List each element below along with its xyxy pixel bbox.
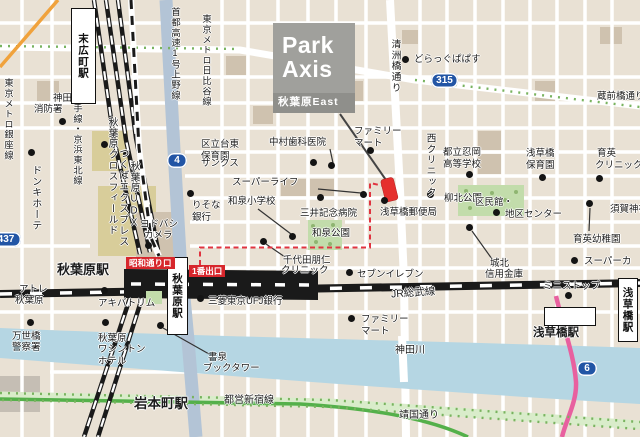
map-label: スーパーライフ [232, 177, 298, 188]
map-label: どらっぐぱぱす [414, 54, 481, 65]
map-label: ヨドバシ [140, 219, 178, 230]
map-label: 蔵前橋通り [597, 91, 640, 102]
map-label: 神田川 [395, 345, 425, 357]
map-label: サンクス [201, 158, 239, 169]
poi-dot [381, 197, 388, 204]
route-shield: 315 [431, 73, 458, 88]
property-logo: Park Axis 秋葉原East [273, 23, 355, 113]
map-label: スーパーカ [584, 256, 631, 267]
map-label: ファミリー [354, 126, 402, 137]
route-shield: 4 [167, 153, 187, 168]
map-label: 中村歯科医院 [269, 137, 326, 148]
map-label: 区立台東 [201, 139, 239, 150]
poi-dot [466, 171, 473, 178]
map-label: 浅草橋駅 [533, 327, 579, 341]
logo-name-block: Park Axis [273, 23, 355, 93]
poi-dot [571, 257, 578, 264]
poi-dot [157, 322, 164, 329]
map-label: クリニック [595, 160, 640, 171]
map-label: 靖国通り [399, 410, 439, 422]
map-label: ミニストップ [543, 281, 600, 292]
map-label: 保育園 [526, 160, 555, 171]
map-label: 首都高速1号上野線 [169, 7, 180, 100]
poi-dot [346, 269, 353, 276]
poi-dot [197, 295, 204, 302]
map-label: マート [354, 138, 383, 149]
station-exit-badge: 1番出口 [189, 265, 225, 277]
logo-subtitle: 秋葉原East [273, 93, 355, 113]
poi-dot [187, 190, 194, 197]
poi-dot [402, 56, 409, 63]
map-label: 清洲橋通り [389, 39, 401, 93]
map-label: 育英幼稚園 [573, 234, 621, 245]
map-label: ブックタワー [203, 363, 260, 374]
area-map: Park Axis 秋葉原East 神田消防署区立台東保育園中村歯科医院サンクス… [0, 0, 640, 437]
map-label: 消防署 [34, 104, 63, 115]
poi-dot [586, 200, 593, 207]
map-label: 東京メトロ日比谷線 [200, 14, 211, 107]
station-exit-badge: 昭和通り口 [126, 257, 175, 269]
poi-dot [101, 287, 108, 294]
map-label: つくばエクスプレス [116, 148, 128, 247]
map-label: 区民館・ [475, 197, 513, 208]
map-label: 地区センター [505, 209, 562, 220]
map-label: クリニック [281, 265, 329, 276]
map-label: 和泉公園 [312, 228, 350, 239]
map-label: 都立忍岡 [443, 147, 481, 158]
map-label: 秋葉原 [15, 295, 44, 306]
map-label: りそな [192, 200, 221, 211]
map-label: 万世橋 [12, 331, 41, 342]
poi-dot [360, 191, 367, 198]
poi-dot [539, 174, 546, 181]
poi-dot [596, 175, 603, 182]
map-label: カメラ [144, 230, 173, 241]
poi-dot [27, 319, 34, 326]
logo-line1: Park [282, 33, 355, 57]
poi-dot [59, 118, 66, 125]
bridge [402, 336, 404, 382]
map-label: ワシントン [98, 344, 146, 355]
map-label: 和泉小学校 [228, 196, 276, 207]
poi-dot [28, 149, 35, 156]
poi-dot [328, 162, 335, 169]
logo-line2: Axis [282, 57, 355, 81]
poi-dot [102, 319, 109, 326]
map-label: 岩本町駅 [134, 396, 188, 412]
map-label: ファミリー [361, 314, 409, 325]
station-box: 浅草橋駅 [618, 278, 638, 342]
map-label: 三井記念病院 [300, 208, 357, 219]
map-label: 秋葉原駅 [57, 262, 109, 277]
map-label: セブンイレブン [357, 269, 424, 280]
map-label: ホテル [98, 356, 127, 367]
map-label: アトレ [19, 284, 48, 295]
map-label: 神田 [53, 93, 72, 104]
route-shield: 6 [577, 361, 597, 376]
map-label: 秋葉原 [98, 333, 127, 344]
map-label: 書泉 [208, 352, 227, 363]
poi-dot [565, 292, 572, 299]
map-label: 都営新宿線 [224, 395, 274, 407]
station-box [544, 307, 596, 326]
map-label: アキバトリム [98, 298, 155, 309]
map-label: 三菱東京UFJ銀行 [208, 296, 282, 307]
poi-dot [348, 315, 355, 322]
map-label: 信用金庫 [485, 269, 523, 280]
map-label: 秋葉原UDX [128, 161, 140, 229]
poi-dot [260, 238, 267, 245]
route-shield: 437 [0, 232, 21, 247]
map-label: 銀行 [192, 212, 211, 223]
poi-dot [145, 242, 152, 249]
poi-dot [493, 209, 500, 216]
map-label: マート [361, 326, 390, 337]
poi-dot [317, 194, 324, 201]
map-label: 山手線・京浜東北線 [71, 93, 82, 186]
map-label: 須賀神社 [610, 204, 640, 215]
poi-dot [310, 159, 317, 166]
poi-dot [289, 233, 296, 240]
map-label: 東京メトロ銀座線 [2, 78, 13, 160]
map-label: ドンキホーテ [29, 165, 41, 231]
map-label: 警察署 [12, 342, 41, 353]
map-label: 浅草橋郵便局 [380, 207, 437, 218]
map-label: 高等学校 [443, 159, 481, 170]
map-label: 西クリニック [424, 133, 436, 198]
poi-dot [466, 224, 473, 231]
map-label: 城北 [490, 258, 509, 269]
map-label: 浅草橋 [526, 148, 555, 159]
station-box: 末広町駅 [71, 8, 96, 104]
map-label: 育英 [597, 148, 616, 159]
